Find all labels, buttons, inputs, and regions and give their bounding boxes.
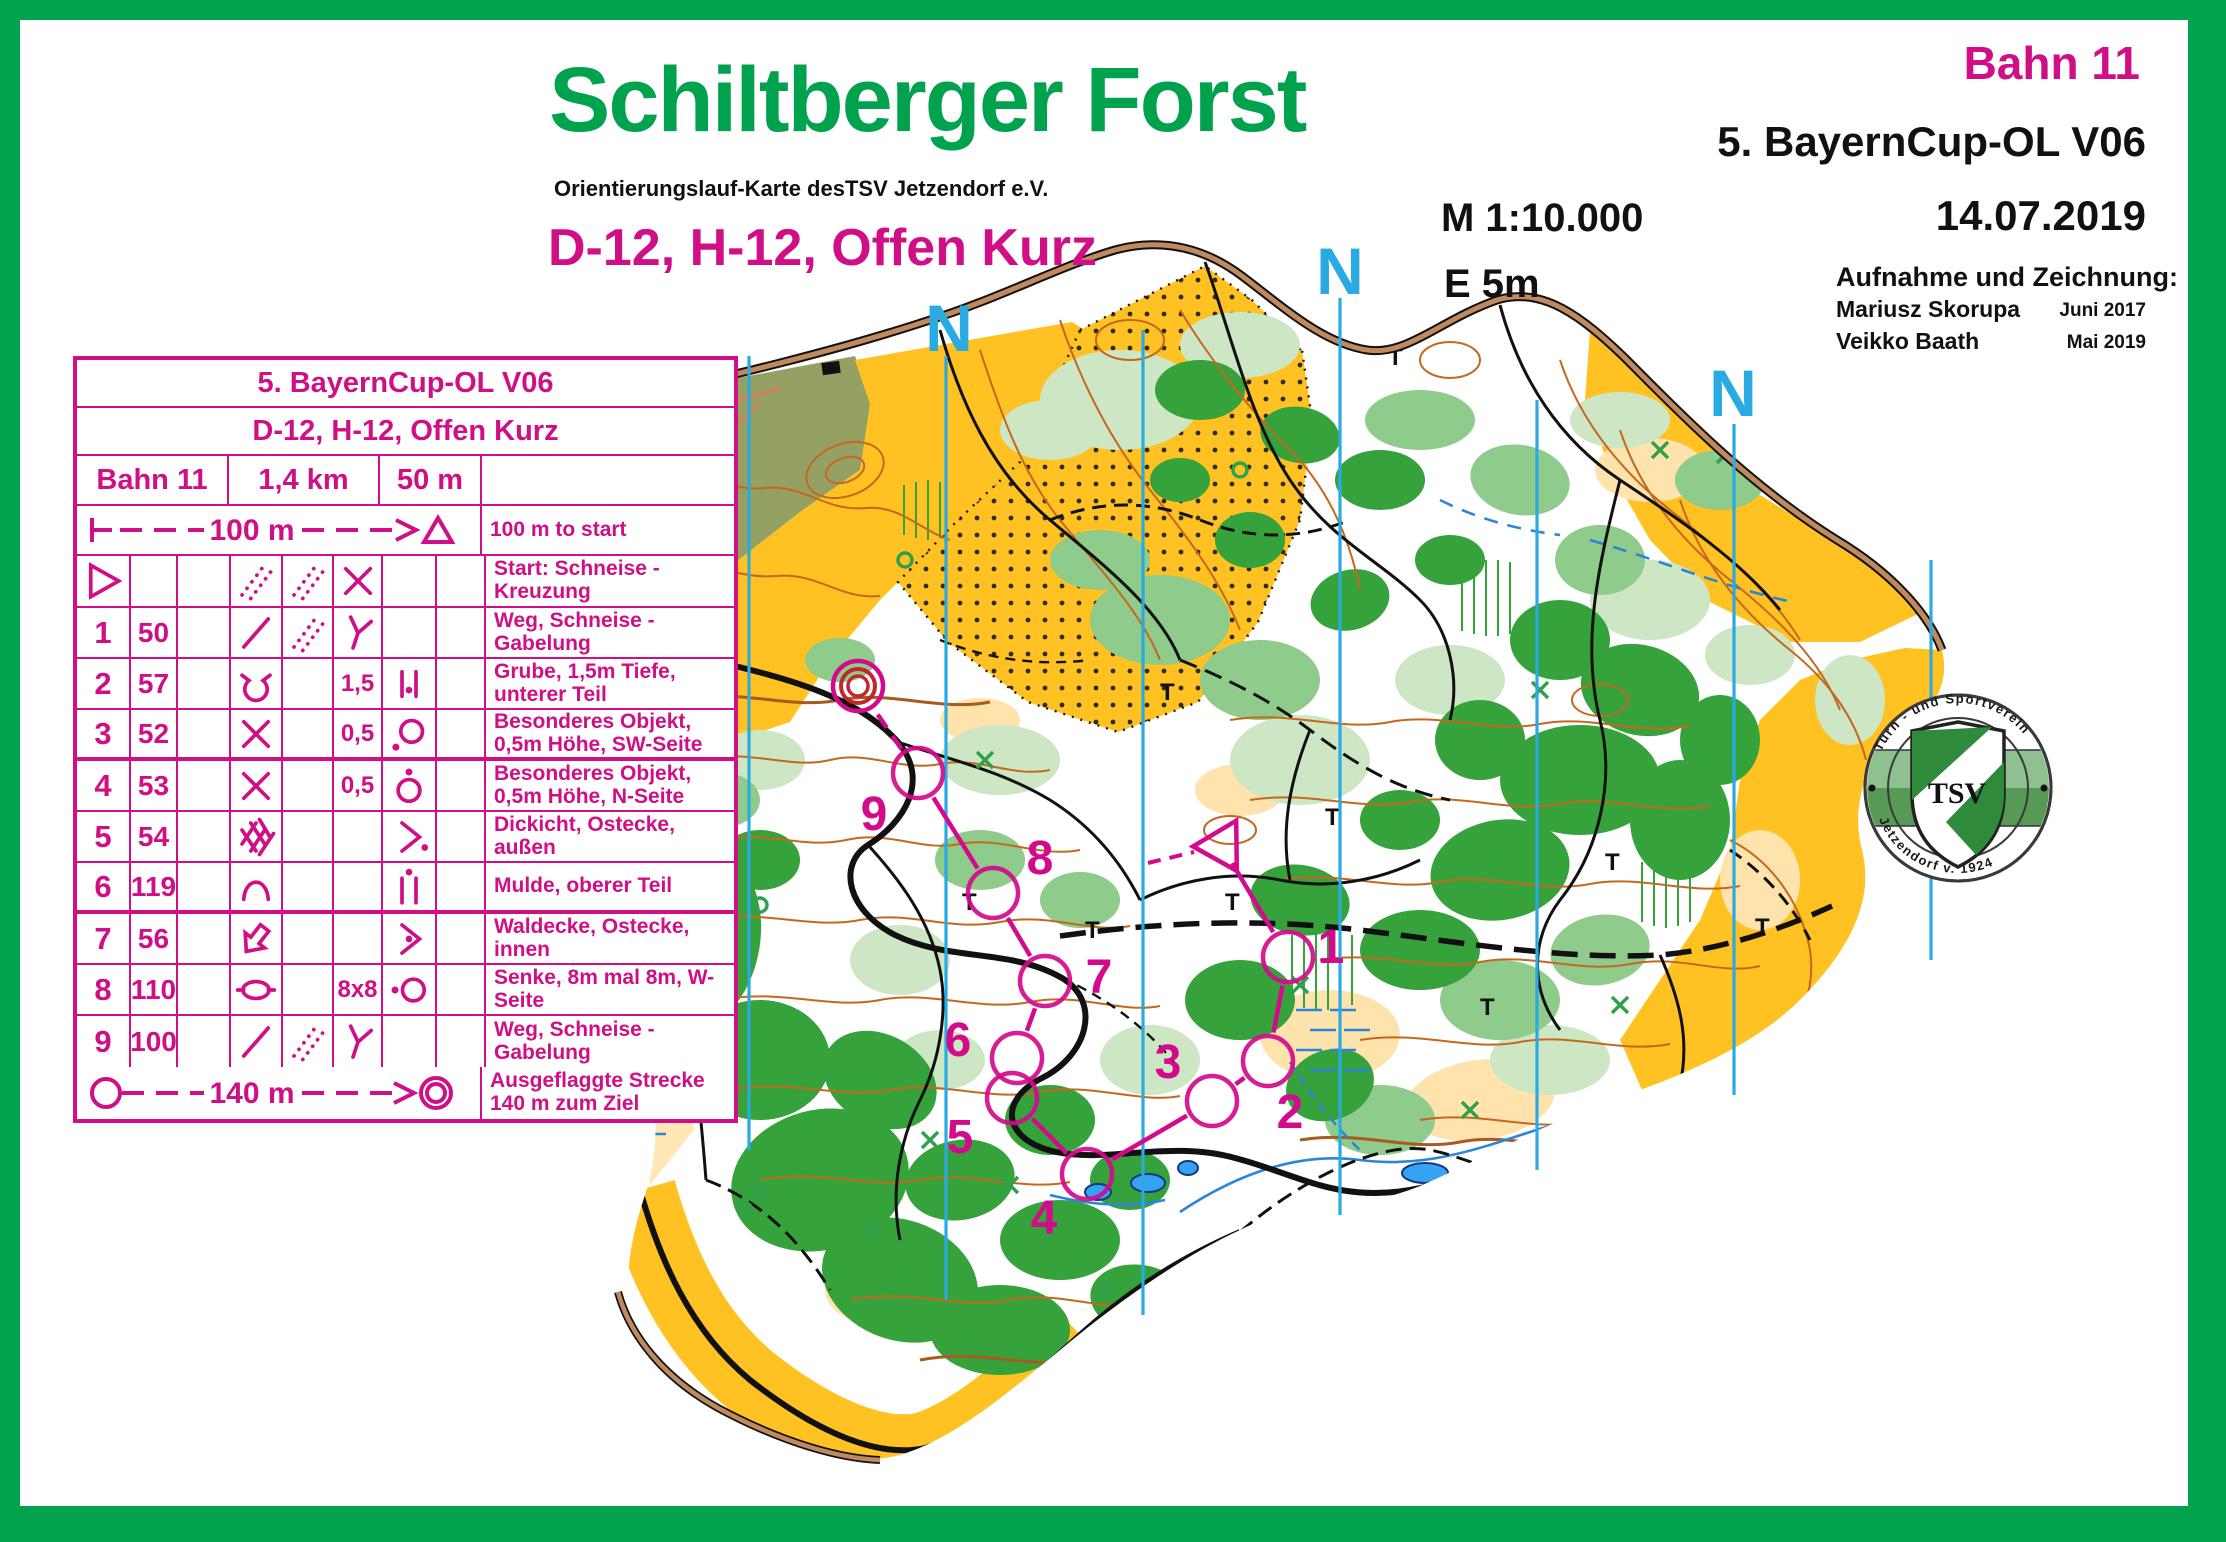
control-number: 7 — [77, 914, 131, 963]
col-g — [383, 761, 437, 810]
control-row-4: 4530,5Besonderes Objekt, 0,5m Höhe, N-Se… — [77, 761, 734, 812]
frame-right — [2188, 0, 2226, 1542]
class-line: D-12, H-12, Offen Kurz — [548, 218, 1097, 278]
slash-icon — [235, 1021, 277, 1063]
cell-b — [131, 556, 178, 606]
control-desc: Besonderes Objekt, 0,5m Höhe, SW-Seite — [486, 710, 734, 757]
start-row: Start: Schneise - Kreuzung — [77, 556, 734, 608]
circle-dot-n-icon — [388, 765, 430, 807]
col-h — [437, 812, 486, 861]
tri-icon — [82, 560, 124, 602]
thicket-icon — [235, 816, 277, 858]
col-h — [437, 1016, 486, 1067]
control-row-9: 9100Weg, Schneise - Gabelung — [77, 1016, 734, 1067]
distance-to-start-desc: 100 m to start — [482, 506, 734, 554]
col-f: 0,5 — [334, 761, 383, 810]
start-triangle — [77, 556, 131, 606]
col-f — [334, 914, 383, 963]
col-f — [334, 556, 383, 606]
credit-name-1: Mariusz Skorupa — [1836, 296, 2020, 323]
control-desc: Dickicht, Ostecke, außen — [486, 812, 734, 861]
col-d — [231, 863, 283, 910]
cell-c — [178, 965, 231, 1014]
col-d — [231, 659, 283, 708]
ride-icon — [287, 612, 329, 654]
slash-icon — [235, 612, 277, 654]
col-g — [383, 710, 437, 757]
control-desc: Mulde, oberer Teil — [486, 863, 734, 910]
control-desc: Waldecke, Ostecke, innen — [486, 914, 734, 963]
control-row-5: 554Dickicht, Ostecke, außen — [77, 812, 734, 863]
cross-icon — [337, 560, 379, 602]
fork-icon — [337, 1021, 379, 1063]
ride-icon — [287, 560, 329, 602]
svg-text:1: 1 — [1318, 921, 1345, 974]
control-number: 8 — [77, 965, 131, 1014]
col-g — [383, 965, 437, 1014]
svg-text:T: T — [1755, 914, 1770, 941]
event-name: 5. BayernCup-OL V06 — [1717, 118, 2146, 166]
control-code: 57 — [131, 659, 178, 708]
bars-dot-icon — [388, 663, 430, 705]
control-row-1: 150Weg, Schneise - Gabelung — [77, 608, 734, 659]
control-code: 53 — [131, 761, 178, 810]
control-desc: Grube, 1,5m Tiefe, unterer Teil — [486, 659, 734, 708]
col-d — [231, 812, 283, 861]
col-h — [437, 608, 486, 657]
angle-dot-out-icon — [388, 816, 430, 858]
svg-text:8: 8 — [1027, 832, 1054, 885]
control-desc: Senke, 8m mal 8m, W-Seite — [486, 965, 734, 1014]
control-code: 110 — [131, 965, 178, 1014]
cell-c — [178, 659, 231, 708]
svg-text:5: 5 — [947, 1111, 974, 1164]
frame-top — [0, 0, 2226, 20]
svg-text:T: T — [1605, 849, 1620, 876]
cell-c — [178, 761, 231, 810]
svg-text:6: 6 — [945, 1014, 972, 1067]
control-desc: Weg, Schneise - Gabelung — [486, 1016, 734, 1067]
col-h — [437, 914, 486, 963]
credit-date-2: Mai 2019 — [2067, 332, 2146, 354]
control-number: 9 — [77, 1016, 131, 1067]
col-e — [283, 965, 334, 1014]
ride-icon — [235, 560, 277, 602]
fork-icon — [337, 612, 379, 654]
col-g — [383, 659, 437, 708]
col-d — [231, 556, 283, 606]
cross-icon — [235, 765, 277, 807]
control-description-card: 5. BayernCup-OL V06 D-12, H-12, Offen Ku… — [73, 356, 738, 1123]
route-to-finish-graphic: 140 m — [77, 1067, 482, 1119]
col-h — [437, 710, 486, 757]
col-e — [283, 608, 334, 657]
col-f — [334, 608, 383, 657]
svg-text:T: T — [1225, 889, 1240, 916]
col-d — [231, 608, 283, 657]
control-row-2: 2571,5Grube, 1,5m Tiefe, unterer Teil — [77, 659, 734, 710]
svg-text:T: T — [1695, 1069, 1710, 1096]
control-code: 119 — [131, 863, 178, 910]
col-g — [383, 863, 437, 910]
cell-c — [178, 556, 231, 606]
control-desc: Weg, Schneise - Gabelung — [486, 608, 734, 657]
control-number: 1 — [77, 608, 131, 657]
control-desc: Besonderes Objekt, 0,5m Höhe, N-Seite — [486, 761, 734, 810]
svg-text:T: T — [1325, 804, 1340, 831]
col-f: 1,5 — [334, 659, 383, 708]
col-e — [283, 556, 334, 606]
control-row-8: 81108x8Senke, 8m mal 8m, W-Seite — [77, 965, 734, 1016]
pit-icon — [235, 663, 277, 705]
control-code: 50 — [131, 608, 178, 657]
svg-text:140 m: 140 m — [209, 1077, 294, 1110]
control-code: 54 — [131, 812, 178, 861]
control-number: 2 — [77, 659, 131, 708]
col-g — [383, 556, 437, 606]
control-code: 56 — [131, 914, 178, 963]
senke-icon — [235, 969, 277, 1011]
course-label: Bahn 11 — [1964, 36, 2140, 90]
svg-text:100 m: 100 m — [209, 514, 294, 547]
card-course-name: Bahn 11 — [77, 456, 229, 504]
col-d — [231, 710, 283, 757]
control-row-6: 6119Mulde, oberer Teil — [77, 863, 734, 914]
col-e — [283, 863, 334, 910]
col-g — [383, 1016, 437, 1067]
route-to-finish-desc: Ausgeflaggte Strecke 140 m zum Ziel — [482, 1067, 734, 1119]
map-subtitle: Orientierungslauf-Karte desTSV Jetzendor… — [554, 176, 1048, 202]
cell-c — [178, 914, 231, 963]
control-code: 100 — [131, 1016, 178, 1067]
col-f: 8x8 — [334, 965, 383, 1014]
frame-left — [0, 0, 20, 1542]
col-h — [437, 965, 486, 1014]
start-desc: Start: Schneise - Kreuzung — [486, 556, 734, 606]
distance-to-start-graphic: 100 m — [77, 506, 482, 554]
north-label-3: N — [1709, 356, 1757, 430]
col-h — [437, 659, 486, 708]
mulde-icon — [235, 866, 277, 908]
svg-text:T: T — [1480, 994, 1495, 1021]
col-d — [231, 914, 283, 963]
map-scale: M 1:10.000 — [1441, 196, 1643, 241]
svg-text:9: 9 — [861, 788, 888, 841]
svg-text:2: 2 — [1277, 1086, 1304, 1139]
corner-icon — [235, 918, 277, 960]
frame-bottom — [0, 1506, 2226, 1542]
svg-text:TSV: TSV — [1928, 777, 1987, 810]
col-d — [231, 1016, 283, 1067]
control-number: 6 — [77, 863, 131, 910]
card-class-line: D-12, H-12, Offen Kurz — [77, 408, 734, 454]
credit-date-1: Juni 2017 — [2059, 300, 2146, 322]
svg-text:T: T — [1160, 679, 1175, 706]
col-e — [283, 914, 334, 963]
col-h — [437, 863, 486, 910]
col-e — [283, 812, 334, 861]
angle-dot-in-icon — [388, 918, 430, 960]
cross-icon — [235, 713, 277, 755]
col-f: 0,5 — [334, 710, 383, 757]
control-row-3: 3520,5Besonderes Objekt, 0,5m Höhe, SW-S… — [77, 710, 734, 761]
control-number: 3 — [77, 710, 131, 757]
card-course-length: 1,4 km — [229, 456, 380, 504]
ride-icon — [287, 1021, 329, 1063]
col-d — [231, 761, 283, 810]
event-date: 14.07.2019 — [1936, 192, 2146, 240]
control-code: 52 — [131, 710, 178, 757]
credit-name-2: Veikko Baath — [1836, 328, 1979, 355]
circle-dot-w-icon — [388, 969, 430, 1011]
col-f — [334, 812, 383, 861]
svg-text:3: 3 — [1155, 1036, 1182, 1089]
cell-c — [178, 1016, 231, 1067]
col-h — [437, 556, 486, 606]
circle-dot-sw-icon — [388, 713, 430, 755]
club-logo: Turn - und Sportverein Jetzendorf v. 192… — [1862, 691, 2054, 881]
cell-c — [178, 812, 231, 861]
credits-heading: Aufnahme und Zeichnung: — [1836, 262, 2178, 293]
col-e — [283, 1016, 334, 1067]
control-row-7: 756Waldecke, Ostecke, innen — [77, 914, 734, 965]
cell-c — [178, 863, 231, 910]
orienteering-map-sheet: Schiltberger Forst Orientierungslauf-Kar… — [0, 0, 2226, 1542]
map-equidistance: E 5m — [1444, 262, 1540, 307]
north-label-1: N — [925, 291, 973, 365]
cell-c — [178, 710, 231, 757]
control-number: 4 — [77, 761, 131, 810]
map-title: Schiltberger Forst — [549, 48, 1305, 153]
col-g — [383, 914, 437, 963]
bars-dot-top-icon — [388, 866, 430, 908]
card-event-title: 5. BayernCup-OL V06 — [77, 360, 734, 406]
card-course-climb: 50 m — [380, 456, 482, 504]
col-g — [383, 608, 437, 657]
svg-text:4: 4 — [1031, 1192, 1058, 1245]
svg-text:T: T — [1085, 917, 1100, 944]
col-e — [283, 710, 334, 757]
cell-c — [178, 608, 231, 657]
col-f — [334, 1016, 383, 1067]
col-h — [437, 761, 486, 810]
north-label-2: N — [1316, 234, 1364, 308]
col-g — [383, 812, 437, 861]
col-d — [231, 965, 283, 1014]
svg-text:7: 7 — [1086, 951, 1113, 1004]
col-f — [334, 863, 383, 910]
card-course-empty — [482, 456, 734, 504]
col-e — [283, 761, 334, 810]
col-e — [283, 659, 334, 708]
control-number: 5 — [77, 812, 131, 861]
